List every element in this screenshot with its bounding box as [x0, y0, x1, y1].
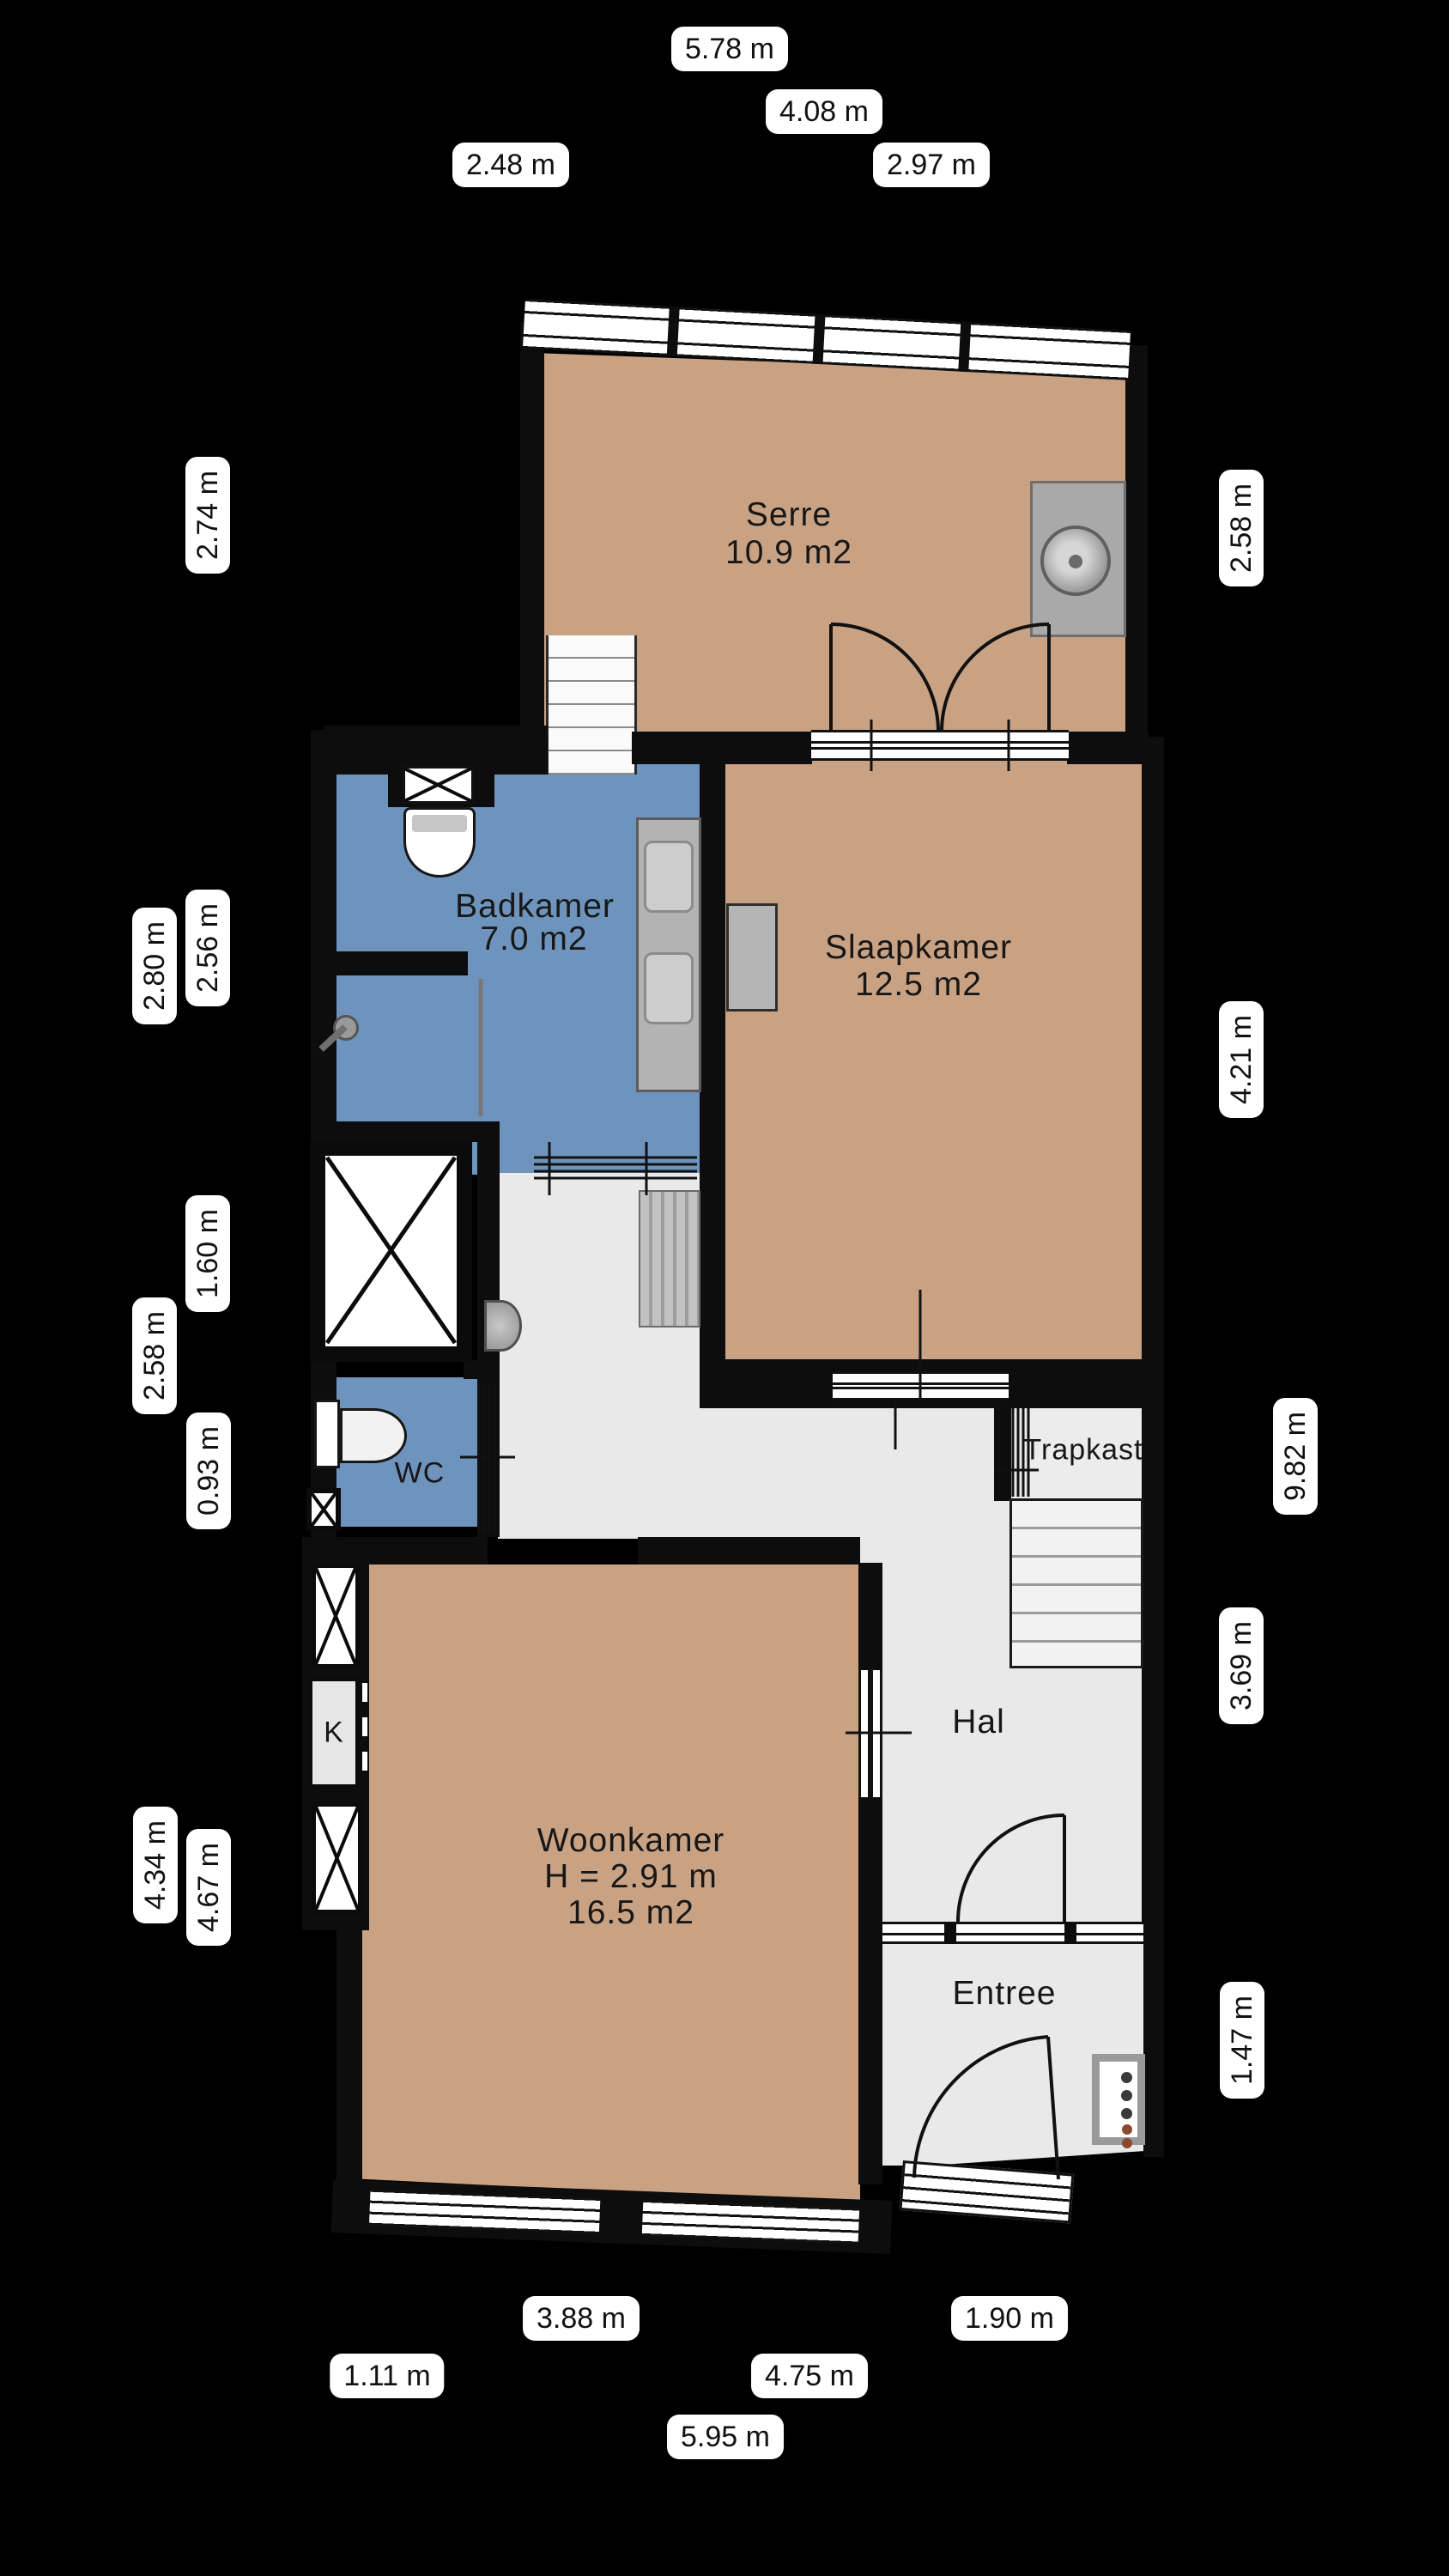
dim-right-5: 1.47 m [1220, 1982, 1264, 2099]
woonkamer-height: H = 2.91 m [544, 1858, 718, 1896]
dim-top-1: 5.78 m [671, 27, 788, 71]
wc-label: WC [395, 1457, 446, 1491]
dim-left-3: 2.56 m [185, 890, 230, 1006]
hal-entree-door [958, 1815, 1064, 1922]
dim-top-4: 2.97 m [873, 143, 990, 187]
dim-left-7: 4.34 m [133, 1807, 178, 1923]
dim-bottom-3: 1.11 m [330, 2354, 444, 2398]
window-ticks [871, 720, 1009, 771]
dim-left-5: 2.58 m [132, 1297, 177, 1414]
slaapkamer-door-line [846, 1290, 920, 1733]
dim-left-4: 1.60 m [185, 1195, 230, 1312]
dim-left-1: 2.74 m [185, 457, 230, 574]
serre-french-doors [831, 624, 1049, 732]
serre-area: 10.9 m2 [725, 534, 852, 572]
dim-bottom-2: 1.90 m [951, 2296, 1068, 2341]
dim-right-1: 2.58 m [1219, 470, 1264, 586]
closet-k-label: K [324, 1716, 344, 1750]
dim-right-3: 9.82 m [1273, 1398, 1318, 1515]
shower-arm [321, 1027, 345, 1049]
wc-door-hatch [460, 1384, 515, 1532]
woonkamer-label: Woonkamer [537, 1822, 725, 1860]
serre-label: Serre [746, 496, 832, 534]
hal-label: Hal [952, 1704, 1005, 1741]
floorplan-canvas: Serre 10.9 m2 Badkamer 7.0 m2 Slaapkamer… [0, 0, 1449, 2576]
woonkamer-area: 16.5 m2 [567, 1894, 694, 1932]
dim-right-4: 3.69 m [1219, 1607, 1264, 1724]
dim-left-8: 4.67 m [186, 1829, 231, 1946]
dim-bottom-4: 4.75 m [751, 2354, 868, 2398]
entree-label: Entree [953, 1975, 1057, 2013]
front-door [914, 2037, 1058, 2179]
slaapkamer-label: Slaapkamer [825, 929, 1012, 967]
dim-top-2: 4.08 m [766, 89, 882, 134]
shaft-x-cross [327, 1157, 455, 1343]
dim-left-2: 2.80 m [132, 908, 177, 1024]
dim-top-3: 2.48 m [452, 143, 569, 187]
dim-bottom-1: 3.88 m [523, 2296, 640, 2341]
slaapkamer-area: 12.5 m2 [855, 966, 982, 1004]
badkamer-area: 7.0 m2 [480, 920, 587, 958]
dim-right-2: 4.21 m [1219, 1001, 1264, 1118]
trapkast-label: Trapkast [1023, 1434, 1143, 1467]
dim-left-6: 0.93 m [186, 1413, 231, 1529]
dim-bottom-5: 5.95 m [667, 2415, 784, 2459]
sliding-door-hatch [534, 1142, 697, 1195]
